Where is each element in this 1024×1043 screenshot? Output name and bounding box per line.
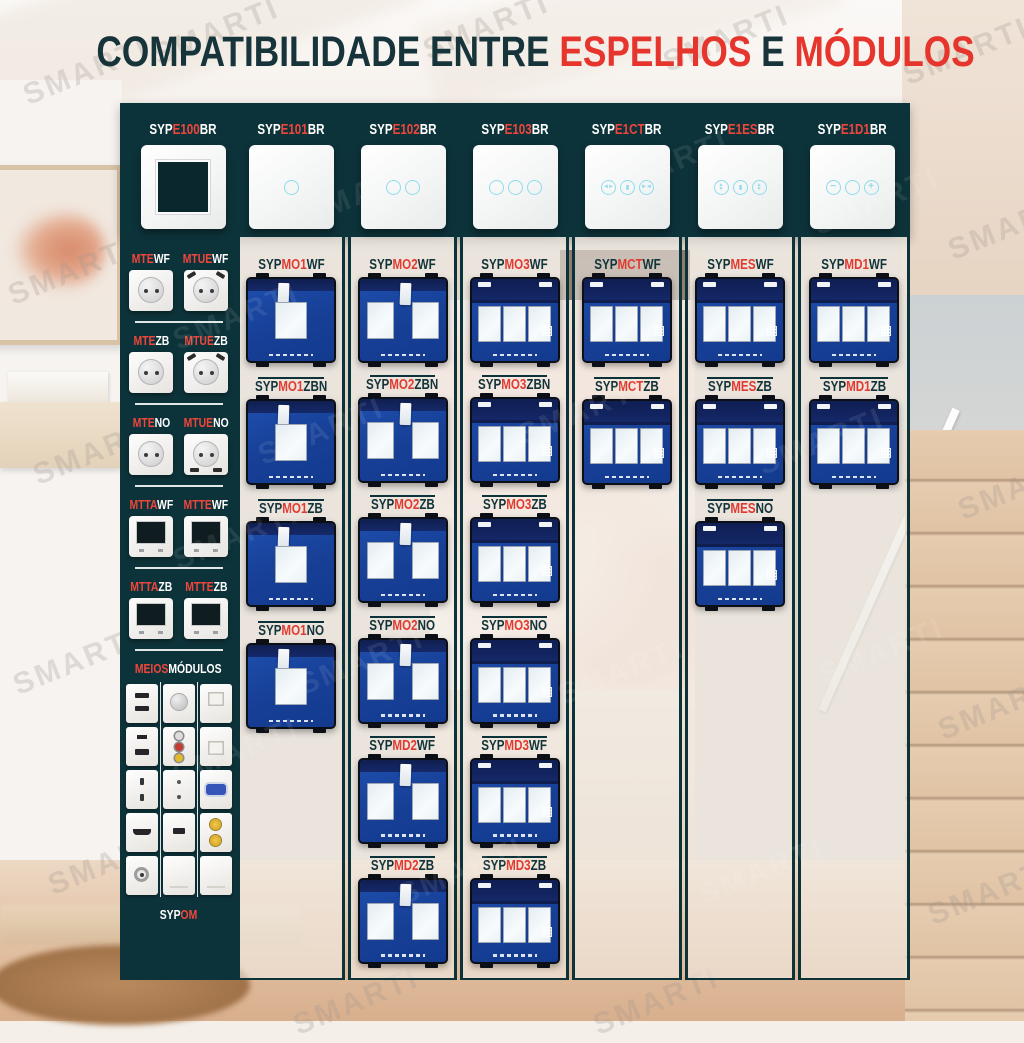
product-code-highlight: MTE bbox=[132, 251, 154, 266]
mounting-tab bbox=[256, 639, 269, 644]
product-code-part: SYP bbox=[705, 122, 728, 138]
module-cell: SYPMO1ZB bbox=[240, 501, 342, 623]
mounting-tab bbox=[592, 484, 605, 489]
sidebar-item-mtueno: MTUENO bbox=[183, 415, 229, 475]
socket-face bbox=[193, 277, 219, 303]
touch-circle-icon: ◄► bbox=[601, 180, 616, 195]
product-code-highlight: E1CT bbox=[615, 122, 645, 138]
sidebar-group-row: MTTAZBMTTEZB bbox=[128, 579, 229, 639]
relay-slot bbox=[412, 903, 439, 940]
mounting-tab bbox=[425, 754, 438, 759]
product-code-highlight: MO2 bbox=[390, 377, 415, 393]
sidebar-group: MTENOMTUENO bbox=[120, 413, 237, 495]
product-code-highlight: MES bbox=[730, 257, 755, 273]
mounting-tab bbox=[480, 482, 493, 487]
icon-glyph: ▼ bbox=[757, 187, 762, 192]
module-sypmo1zb bbox=[246, 521, 336, 607]
product-code: SYPMCTWF bbox=[594, 257, 660, 273]
product-code-part: SYP bbox=[259, 501, 282, 517]
mounting-tab bbox=[425, 482, 438, 487]
screen-face bbox=[192, 522, 220, 543]
product-code-part: SYP bbox=[160, 907, 181, 922]
mounting-tab bbox=[876, 484, 889, 489]
product-code-part: ZBN bbox=[527, 377, 551, 393]
coax-dual-glyph bbox=[210, 819, 221, 830]
faceplate-image bbox=[473, 145, 558, 229]
module-clip bbox=[878, 404, 891, 409]
usb-glyph bbox=[173, 828, 185, 834]
screen-face bbox=[192, 604, 220, 625]
product-code: SYPMESNO bbox=[707, 501, 773, 517]
usb-dual-module bbox=[126, 684, 158, 723]
socket-usb-image bbox=[184, 270, 228, 311]
relay-slot bbox=[503, 667, 526, 703]
product-code: SYPMD3WF bbox=[482, 738, 548, 754]
qr-code bbox=[542, 927, 552, 937]
touch-circle-icon bbox=[845, 180, 860, 195]
usb-dual-glyph bbox=[135, 706, 149, 711]
module-cell: SYPMO3ZBN bbox=[463, 377, 566, 497]
product-code-highlight: MTTA bbox=[130, 579, 158, 594]
sidebar-item-mttezb: MTTEZB bbox=[183, 579, 229, 639]
module-microtext bbox=[381, 954, 425, 957]
module-sypmd1zb bbox=[809, 399, 899, 485]
product-code-part: SYP bbox=[481, 257, 504, 273]
sidebar-group-row: MTEZBMTUEZB bbox=[128, 333, 229, 393]
mounting-tab bbox=[368, 963, 381, 968]
mounting-tab bbox=[368, 754, 381, 759]
product-code-part: ZB bbox=[158, 579, 172, 594]
relay-slot bbox=[412, 663, 439, 700]
relay-slot bbox=[503, 306, 526, 342]
mounting-tab bbox=[313, 395, 326, 400]
product-code-highlight: E103 bbox=[505, 122, 532, 138]
module-sypmeswf bbox=[695, 277, 785, 363]
product-code-highlight: MCT bbox=[618, 379, 643, 395]
socket-image bbox=[129, 434, 173, 475]
module-column-5: SYPMESWFSYPMESZBSYPMESNO bbox=[685, 237, 795, 980]
dots-glyph bbox=[177, 795, 181, 799]
product-code-highlight: E1ES bbox=[728, 122, 758, 138]
module-cell: SYPMO2NO bbox=[351, 618, 454, 738]
relay-slot bbox=[842, 306, 865, 342]
mounting-tab bbox=[480, 273, 493, 278]
product-code-highlight: MO3 bbox=[502, 377, 527, 393]
module-top-band bbox=[248, 401, 334, 413]
mounting-tab bbox=[368, 273, 381, 278]
mounting-tab bbox=[425, 634, 438, 639]
mounting-tab bbox=[425, 513, 438, 518]
mounting-tab bbox=[256, 273, 269, 278]
module-cell: SYPMO2ZB bbox=[351, 497, 454, 617]
socket-usb-image bbox=[184, 352, 228, 393]
usb-port bbox=[213, 468, 222, 472]
screen-image bbox=[129, 516, 173, 557]
mounting-tab bbox=[705, 484, 718, 489]
touch-circle-icon: ▮ bbox=[620, 180, 635, 195]
module-microtext bbox=[269, 354, 313, 357]
sypom-label: SYPOM bbox=[155, 906, 202, 924]
mounting-tab bbox=[537, 634, 550, 639]
touch-circle-icon: ▮ bbox=[733, 180, 748, 195]
slot-usb-glyph bbox=[135, 749, 149, 755]
usb-dual-glyph bbox=[135, 693, 149, 698]
socket-face bbox=[193, 359, 219, 385]
module-cell: SYPMO2ZBN bbox=[351, 377, 454, 497]
meios-modulos-section: MEIOSMÓDULOSSYPOM bbox=[120, 661, 237, 924]
module-microtext bbox=[493, 714, 537, 717]
product-code-part: ZB bbox=[531, 497, 546, 513]
product-code-part: SYP bbox=[482, 618, 505, 634]
touch-circle-icon bbox=[284, 180, 299, 195]
relay-slot bbox=[503, 426, 526, 462]
socket-hole bbox=[199, 371, 203, 375]
mounting-tab bbox=[762, 606, 775, 611]
sidebar-item-mttawf: MTTAWF bbox=[128, 497, 174, 557]
keystone-glyph bbox=[208, 692, 224, 706]
curtain-control-icon: ◄►▮►◄ bbox=[601, 180, 654, 195]
mounting-tab bbox=[649, 484, 662, 489]
product-code: SYPMD1ZB bbox=[822, 379, 885, 395]
module-clip bbox=[478, 763, 491, 768]
product-code-highlight: MTTE bbox=[185, 579, 213, 594]
mounting-tab bbox=[537, 963, 550, 968]
mounting-tab bbox=[876, 273, 889, 278]
relay-slot bbox=[367, 783, 394, 820]
relay-slot bbox=[412, 542, 439, 579]
product-code-highlight: MO2 bbox=[393, 257, 418, 273]
mounting-tab bbox=[256, 728, 269, 733]
module-sypmo3wf bbox=[470, 277, 560, 363]
product-code-highlight: MTE bbox=[133, 333, 155, 348]
sidebar-group-row: MTTAWFMTTEWF bbox=[128, 497, 229, 557]
mounting-tab bbox=[762, 517, 775, 522]
socket-hole bbox=[210, 289, 214, 293]
mounting-tab bbox=[537, 754, 550, 759]
product-code-highlight: MO1 bbox=[281, 623, 306, 639]
product-code-highlight: MD3 bbox=[506, 858, 531, 874]
relay-slot bbox=[728, 428, 751, 464]
mounting-tab bbox=[762, 362, 775, 367]
relay-slot bbox=[412, 422, 439, 459]
product-code-part: SYP bbox=[707, 501, 730, 517]
product-code-part: WF bbox=[755, 257, 773, 273]
product-code-part: SYP bbox=[370, 738, 393, 754]
module-cell: SYPMO1NO bbox=[240, 623, 342, 745]
sidebar-group-row: MTEWFMTUEWF bbox=[128, 251, 229, 311]
title-part: E bbox=[751, 28, 794, 76]
dots-glyph bbox=[177, 780, 181, 784]
product-code-part: SYP bbox=[258, 623, 281, 639]
product-code: SYPOM bbox=[160, 907, 198, 922]
product-code-part: SYP bbox=[821, 257, 844, 273]
screen-key bbox=[158, 631, 163, 634]
icon-glyph: ► bbox=[608, 184, 613, 190]
product-code: SYPMO3ZBN bbox=[478, 377, 550, 393]
socket-hole bbox=[155, 289, 159, 293]
blank-glyph bbox=[207, 886, 225, 888]
product-code-part: WF bbox=[418, 257, 436, 273]
product-code-highlight: MO2 bbox=[394, 497, 419, 513]
product-code-highlight: MO3 bbox=[506, 497, 531, 513]
module-top-band bbox=[248, 279, 334, 291]
wall-painting bbox=[0, 165, 122, 345]
mounting-tab bbox=[313, 639, 326, 644]
title-part-highlight: MÓDULOS bbox=[794, 28, 974, 76]
relay-slot bbox=[275, 546, 307, 583]
icon-glyph: ▮ bbox=[626, 184, 628, 191]
screen-key bbox=[139, 549, 144, 552]
relay-slot bbox=[367, 663, 394, 700]
module-column-4: SYPMCTWFSYPMCTZB bbox=[572, 237, 682, 980]
mounting-tab bbox=[425, 723, 438, 728]
relay-slot bbox=[728, 306, 751, 342]
socket-face bbox=[138, 277, 164, 303]
module-sypmd2zb bbox=[358, 878, 448, 964]
mounting-tab bbox=[313, 362, 326, 367]
touch-circle-icon bbox=[405, 180, 420, 195]
module-microtext bbox=[381, 714, 425, 717]
relay-slot bbox=[503, 787, 526, 823]
mounting-tab bbox=[368, 723, 381, 728]
mounting-tab bbox=[256, 517, 269, 522]
relay-slot bbox=[640, 306, 663, 342]
product-code: SYPMCTZB bbox=[595, 379, 659, 395]
module-cell: SYPMESNO bbox=[688, 501, 792, 623]
module-sypmo3zb bbox=[470, 517, 560, 603]
qr-code bbox=[542, 687, 552, 697]
mounting-tab bbox=[368, 874, 381, 879]
relay-slot bbox=[703, 306, 726, 342]
product-code-part: WF bbox=[530, 257, 548, 273]
relay-slot bbox=[640, 428, 663, 464]
module-top-band bbox=[248, 523, 334, 535]
product-code-part: ZB bbox=[531, 858, 546, 874]
product-code-part: SYP bbox=[371, 497, 394, 513]
mounting-tab bbox=[537, 602, 550, 607]
mounting-tab bbox=[762, 273, 775, 278]
relay-slot bbox=[615, 428, 638, 464]
touch-circle-icon bbox=[489, 180, 504, 195]
mounting-tab bbox=[480, 754, 493, 759]
product-code-part: BR bbox=[420, 122, 437, 138]
sidebar-item-mtezb: MTEZB bbox=[128, 333, 174, 393]
product-code-highlight: MO1 bbox=[278, 379, 303, 395]
relay-slot bbox=[590, 428, 613, 464]
product-code: MTUENO bbox=[183, 415, 228, 430]
mounting-tab bbox=[537, 513, 550, 518]
relay-slot bbox=[478, 546, 501, 582]
module-sypmo2no bbox=[358, 638, 448, 724]
product-code-highlight: MTUE bbox=[183, 415, 212, 430]
touch-circle-icon bbox=[508, 180, 523, 195]
product-code-part: ZB bbox=[756, 379, 771, 395]
product-code-highlight: MEIOS bbox=[135, 661, 169, 676]
shutter-control-icon: ▲▼▮▲▼ bbox=[714, 180, 767, 195]
rca-module bbox=[163, 727, 195, 766]
sideboard bbox=[0, 402, 122, 468]
mounting-tab bbox=[537, 723, 550, 728]
product-code-part: SYP bbox=[707, 257, 730, 273]
product-code-part: SYP bbox=[481, 122, 504, 138]
sidebar-item-mteno: MTENO bbox=[128, 415, 174, 475]
product-code-highlight: MO1 bbox=[282, 501, 307, 517]
sidebar-divider bbox=[135, 403, 223, 405]
module-clip bbox=[478, 282, 491, 287]
product-code-part: SYP bbox=[482, 738, 505, 754]
module-cell: SYPMD3WF bbox=[463, 738, 566, 858]
product-code: MTTEWF bbox=[184, 497, 228, 512]
module-microtext bbox=[381, 474, 425, 477]
module-sypmeszb bbox=[695, 399, 785, 485]
module-microtext bbox=[605, 354, 649, 357]
product-code: SYPE102BR bbox=[369, 122, 436, 138]
socket-usb-b-image bbox=[184, 434, 228, 475]
module-clip bbox=[539, 522, 552, 527]
usb-port bbox=[190, 468, 199, 472]
module-sypmo2zb bbox=[358, 517, 448, 603]
vga-module bbox=[200, 770, 232, 809]
tv-module bbox=[126, 856, 158, 895]
mounting-tab bbox=[480, 362, 493, 367]
qr-code bbox=[881, 326, 891, 336]
mounting-tab bbox=[368, 393, 381, 398]
qr-code bbox=[542, 807, 552, 817]
socket-hole bbox=[144, 453, 148, 457]
module-sypmo1zbn bbox=[246, 399, 336, 485]
qr-code bbox=[654, 448, 664, 458]
module-cell: SYPMO3WF bbox=[463, 257, 566, 377]
product-code: SYPMO2ZBN bbox=[366, 377, 438, 393]
socket-hole bbox=[144, 289, 148, 293]
module-microtext bbox=[718, 598, 762, 601]
sidebar-item-mttewf: MTTEWF bbox=[183, 497, 229, 557]
product-code-part: ZBN bbox=[415, 377, 439, 393]
screen-face bbox=[137, 604, 165, 625]
product-code-part: WF bbox=[529, 738, 547, 754]
product-code: SYPMO3ZB bbox=[483, 497, 547, 513]
module-sypmo1no bbox=[246, 643, 336, 729]
product-code-part: ZB bbox=[643, 379, 658, 395]
module-clip bbox=[703, 526, 716, 531]
product-code-highlight: MO3 bbox=[505, 618, 530, 634]
mounting-tab bbox=[537, 482, 550, 487]
coax-dual-module bbox=[200, 813, 232, 852]
product-code-highlight: E1D1 bbox=[841, 122, 870, 138]
screen-key bbox=[194, 549, 199, 552]
rj45-module bbox=[200, 727, 232, 766]
module-cell: SYPMD1ZB bbox=[801, 379, 907, 501]
product-code-part: MÓDULOS bbox=[169, 661, 222, 676]
mounting-tab bbox=[256, 362, 269, 367]
module-clip bbox=[478, 643, 491, 648]
mounting-tab bbox=[537, 393, 550, 398]
module-sypmo3zbn bbox=[470, 397, 560, 483]
mounting-tab bbox=[425, 963, 438, 968]
module-cell: SYPMD2ZB bbox=[351, 858, 454, 978]
module-sypmd2wf bbox=[358, 758, 448, 844]
keystone-module bbox=[200, 684, 232, 723]
module-microtext bbox=[381, 354, 425, 357]
touch-circle-icon: ►◄ bbox=[639, 180, 654, 195]
qr-code bbox=[767, 448, 777, 458]
module-microtext bbox=[269, 476, 313, 479]
qr-code bbox=[767, 570, 777, 580]
sidebar-group: MTTAWFMTTEWF bbox=[120, 495, 237, 577]
product-code-part: SYP bbox=[594, 257, 617, 273]
title-part-highlight: ESPELHOS bbox=[559, 28, 751, 76]
screen-key bbox=[194, 631, 199, 634]
touch-circle-icon: + bbox=[864, 180, 879, 195]
coax-dual-glyph bbox=[210, 835, 221, 846]
module-clip bbox=[651, 404, 664, 409]
page-title: COMPATIBILIDADE ENTRE ESPELHOS E MÓDULOS bbox=[0, 30, 1024, 75]
product-code-part: SYP bbox=[257, 122, 280, 138]
tv-glyph bbox=[140, 873, 144, 877]
product-code-part: NO bbox=[755, 501, 772, 517]
product-code-part: SYP bbox=[149, 122, 172, 138]
hdmi-module bbox=[126, 813, 158, 852]
blank-module bbox=[200, 856, 232, 895]
product-code-part: SYP bbox=[818, 122, 841, 138]
mounting-tab bbox=[368, 362, 381, 367]
mounting-tab bbox=[368, 602, 381, 607]
mounting-tab bbox=[480, 843, 493, 848]
module-clip bbox=[590, 282, 603, 287]
dots-module bbox=[163, 770, 195, 809]
screen-key bbox=[213, 549, 218, 552]
module-microtext bbox=[269, 598, 313, 601]
screen-face bbox=[137, 522, 165, 543]
touch-circle-icon: ▲▼ bbox=[752, 180, 767, 195]
module-clip bbox=[478, 402, 491, 407]
relay-slot bbox=[528, 306, 551, 342]
module-sypmctwf bbox=[582, 277, 672, 363]
product-code-part: BR bbox=[308, 122, 325, 138]
product-code-part: NO bbox=[530, 618, 547, 634]
product-code-part: SYP bbox=[369, 257, 392, 273]
product-code: SYPMD2ZB bbox=[371, 858, 434, 874]
product-code-highlight: MTUE bbox=[183, 251, 212, 266]
socket-hole bbox=[210, 453, 214, 457]
faceplate-image bbox=[361, 145, 446, 229]
module-cell: SYPMO1ZBN bbox=[240, 379, 342, 501]
mounting-tab bbox=[649, 362, 662, 367]
relay-slot bbox=[703, 550, 726, 586]
sidebar-group: MTEZBMTUEZB bbox=[120, 331, 237, 413]
module-microtext bbox=[493, 474, 537, 477]
mounting-tab bbox=[876, 362, 889, 367]
relay-slot bbox=[817, 306, 840, 342]
slot-usb-glyph bbox=[137, 735, 147, 739]
product-code-part: WF bbox=[869, 257, 887, 273]
mounting-tab bbox=[819, 484, 832, 489]
blank-module bbox=[163, 856, 195, 895]
relay-slot bbox=[503, 907, 526, 943]
mounting-tab bbox=[368, 513, 381, 518]
product-code-highlight: MO2 bbox=[393, 618, 418, 634]
usb-port bbox=[216, 353, 226, 361]
module-sypmesno bbox=[695, 521, 785, 607]
product-code: SYPMO1ZBN bbox=[255, 379, 327, 395]
relay-slot bbox=[367, 302, 394, 339]
product-code-part: SYP bbox=[483, 858, 506, 874]
touch-circle-icon bbox=[386, 180, 401, 195]
module-clip bbox=[878, 282, 891, 287]
product-code-highlight: MO1 bbox=[281, 257, 306, 273]
product-code: SYPE1D1BR bbox=[818, 122, 887, 138]
mounting-tab bbox=[705, 606, 718, 611]
